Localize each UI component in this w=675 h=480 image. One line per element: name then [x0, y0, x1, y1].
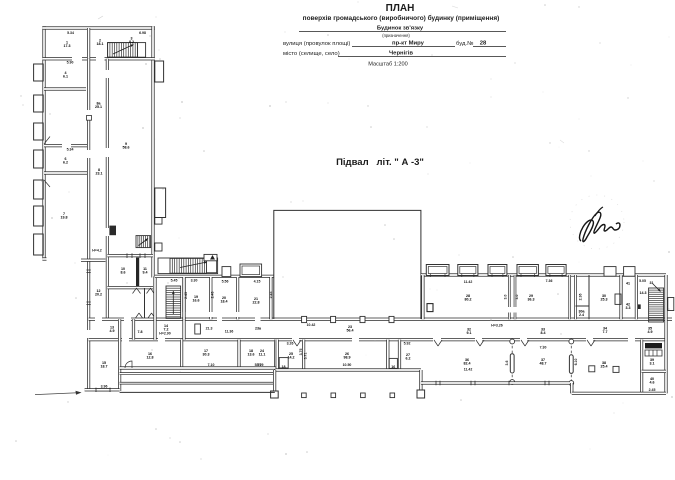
svg-text:8.6: 8.6 — [121, 270, 126, 274]
svg-text:3.71: 3.71 — [304, 353, 308, 360]
svg-text:поверхів громадського (виробни: поверхів громадського (виробничого) буди… — [303, 14, 500, 22]
svg-text:місто (селище, село): місто (селище, село) — [283, 51, 340, 57]
svg-text:6.2: 6.2 — [406, 356, 411, 360]
svg-text:58.6: 58.6 — [123, 145, 130, 149]
svg-text:16: 16 — [391, 365, 395, 369]
svg-text:80.2: 80.2 — [465, 297, 472, 301]
svg-text:7.8: 7.8 — [138, 330, 143, 334]
svg-text:5.79: 5.79 — [257, 363, 264, 367]
svg-text:6.2: 6.2 — [63, 160, 68, 164]
svg-text:5.90: 5.90 — [67, 61, 74, 65]
svg-text:Чернігів: Чернігів — [389, 51, 413, 57]
svg-text:6.98: 6.98 — [139, 31, 146, 35]
svg-text:13.6: 13.6 — [248, 352, 255, 356]
svg-text:2.43: 2.43 — [184, 292, 188, 299]
svg-text:56.4: 56.4 — [347, 328, 354, 332]
svg-text:Н=4.2: Н=4.2 — [92, 249, 101, 253]
svg-text:21.3: 21.3 — [206, 327, 213, 331]
svg-text:9.4: 9.4 — [143, 270, 148, 274]
svg-text:98.9: 98.9 — [344, 355, 351, 359]
svg-text:3.30: 3.30 — [191, 279, 198, 283]
svg-text:пр-кт Миру: пр-кт Миру — [392, 41, 425, 47]
svg-text:25.4: 25.4 — [601, 364, 608, 368]
svg-text:23.1: 23.1 — [96, 171, 103, 175]
svg-text:3.0: 3.0 — [515, 295, 519, 300]
svg-text:7.10: 7.10 — [208, 363, 215, 367]
svg-text:Будинок зв'язку: Будинок зв'язку — [377, 26, 424, 32]
svg-text:9.1: 9.1 — [467, 331, 472, 335]
svg-text:16.6: 16.6 — [193, 298, 200, 302]
svg-text:Н=2.90: Н=2.90 — [159, 332, 170, 336]
svg-text:5.05: 5.05 — [639, 279, 646, 283]
svg-text:2.45: 2.45 — [649, 388, 656, 392]
svg-text:82.4: 82.4 — [464, 361, 471, 365]
svg-text:41: 41 — [626, 282, 630, 286]
svg-text:5.45: 5.45 — [171, 279, 178, 283]
svg-text:ПЛАН: ПЛАН — [386, 3, 415, 14]
svg-text:4.15: 4.15 — [254, 280, 261, 284]
svg-text:18.7: 18.7 — [101, 364, 108, 368]
svg-text:22.8: 22.8 — [253, 300, 260, 304]
svg-text:7.7: 7.7 — [603, 330, 608, 334]
svg-text:буд.№: буд.№ — [456, 40, 473, 47]
svg-text:3.1: 3.1 — [650, 361, 655, 365]
svg-text:Підвал літ. " А -3": Підвал літ. " А -3" — [336, 157, 424, 168]
svg-text:14.3: 14.3 — [640, 291, 647, 295]
svg-text:2.36: 2.36 — [579, 294, 583, 301]
svg-text:18.4: 18.4 — [221, 299, 228, 303]
svg-text:6.1: 6.1 — [63, 74, 68, 78]
svg-text:6.10: 6.10 — [574, 359, 578, 366]
svg-text:3.26: 3.26 — [287, 342, 294, 346]
svg-text:8.2: 8.2 — [129, 40, 134, 44]
svg-text:(призначення): (призначення) — [382, 33, 410, 38]
svg-text:18: 18 — [282, 365, 286, 369]
svg-text:10.50: 10.50 — [343, 363, 352, 367]
svg-text:3.0: 3.0 — [504, 295, 508, 300]
svg-text:4.9: 4.9 — [648, 330, 653, 334]
svg-text:7.36: 7.36 — [546, 279, 553, 283]
svg-text:11.36: 11.36 — [225, 330, 234, 334]
svg-text:5.92: 5.92 — [404, 342, 411, 346]
svg-text:48.7: 48.7 — [540, 361, 547, 365]
svg-text:Масштаб 1:200: Масштаб 1:200 — [368, 62, 407, 68]
svg-text:4.6: 4.6 — [650, 380, 655, 384]
svg-text:17.3: 17.3 — [64, 44, 71, 48]
svg-text:28: 28 — [480, 41, 487, 47]
svg-text:2.43: 2.43 — [211, 292, 215, 299]
svg-text:25.3: 25.3 — [601, 297, 608, 301]
svg-text:8.4: 8.4 — [541, 331, 546, 335]
svg-text:11.1: 11.1 — [259, 352, 266, 356]
svg-text:5.34: 5.34 — [67, 148, 74, 152]
svg-text:Н=3.26: Н=3.26 — [491, 324, 502, 328]
svg-text:5.56: 5.56 — [222, 280, 229, 284]
svg-text:12.8: 12.8 — [147, 355, 154, 359]
svg-text:4.9: 4.9 — [110, 329, 115, 333]
svg-text:2.43: 2.43 — [269, 292, 273, 299]
svg-text:3.75: 3.75 — [299, 349, 303, 356]
svg-text:3.3: 3.3 — [626, 306, 631, 310]
svg-text:3.6: 3.6 — [505, 361, 509, 366]
svg-text:30.3: 30.3 — [203, 352, 210, 356]
svg-text:20.2: 20.2 — [95, 292, 102, 296]
svg-text:5.34: 5.34 — [67, 31, 74, 35]
svg-text:11.42: 11.42 — [464, 368, 473, 372]
svg-text:2.4: 2.4 — [579, 313, 584, 317]
svg-text:11.42: 11.42 — [464, 280, 473, 284]
svg-text:19.8: 19.8 — [61, 215, 68, 219]
svg-text:25.1: 25.1 — [95, 105, 102, 109]
svg-text:вулиця (провулок площі): вулиця (провулок площі) — [283, 41, 350, 47]
svg-text:36.3: 36.3 — [528, 297, 535, 301]
svg-text:18.1: 18.1 — [97, 42, 104, 46]
svg-text:10.42: 10.42 — [307, 323, 316, 327]
svg-text:3.96: 3.96 — [101, 384, 108, 388]
svg-text:23а: 23а — [255, 327, 262, 331]
